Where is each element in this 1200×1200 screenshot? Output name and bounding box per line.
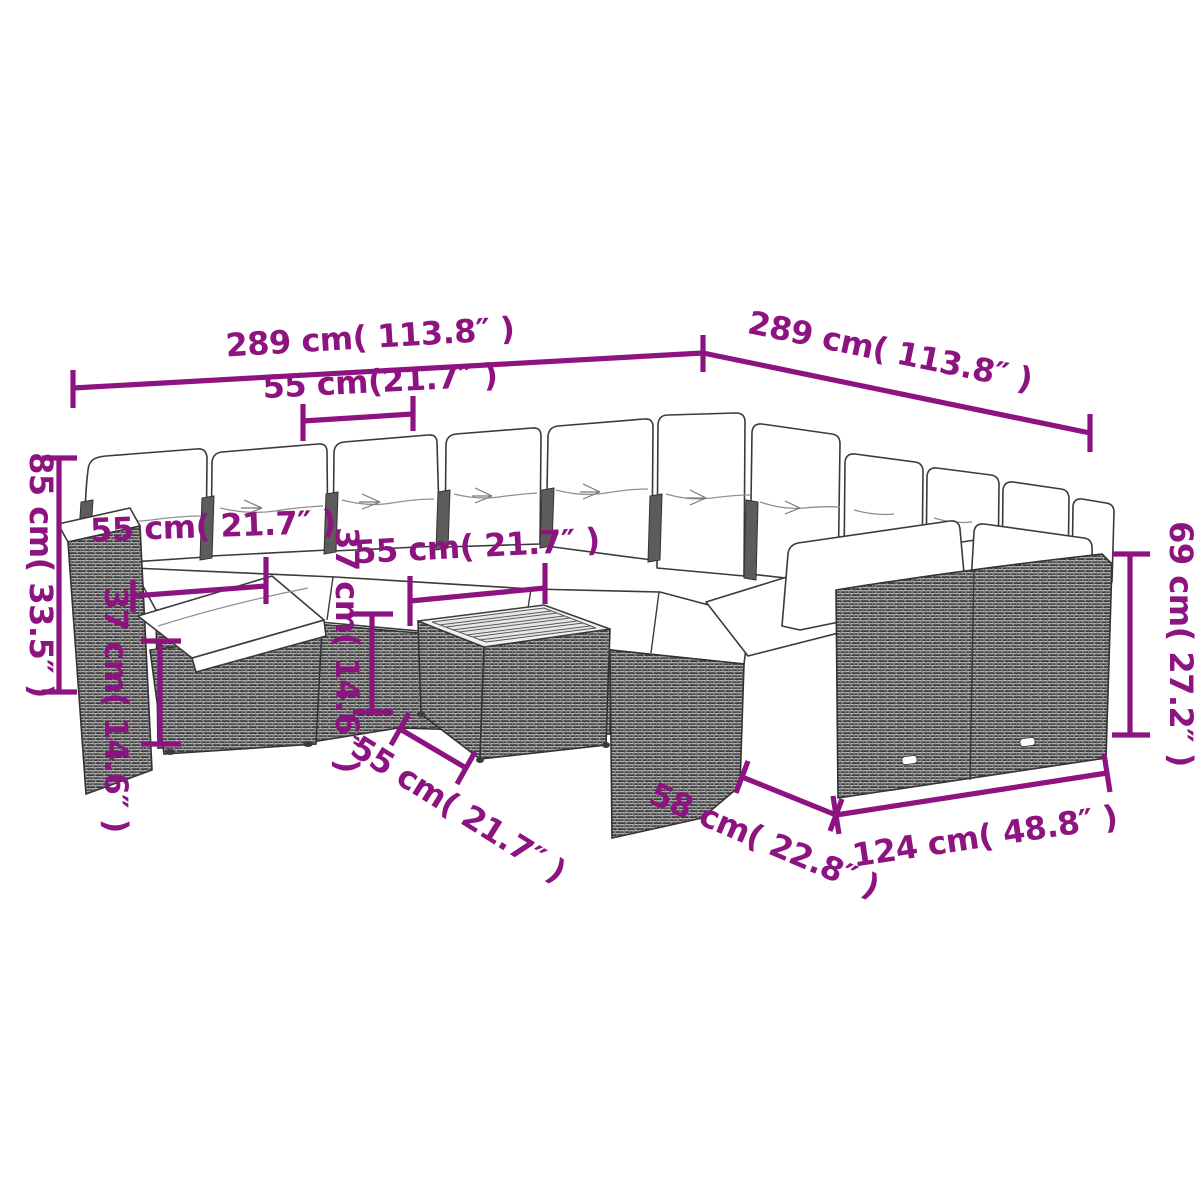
dimension-back-height-left: 85 cm( 33.5″ )	[22, 452, 77, 698]
dimension-label: 69 cm( 27.2″ )	[1162, 521, 1200, 767]
sofa-illustration	[58, 413, 1114, 838]
product-dimension-diagram: 289 cm( 113.8″ ) 289 cm( 113.8″ ) 55 cm(…	[0, 0, 1200, 1200]
diagram-canvas: 289 cm( 113.8″ ) 289 cm( 113.8″ ) 55 cm(…	[0, 0, 1200, 1200]
coffee-table	[417, 605, 610, 763]
dimension-seat-width-top: 55 cm(21.7″ )	[262, 356, 499, 441]
dimension-label: 289 cm( 113.8″ )	[745, 303, 1036, 398]
dimension-side-height-right: 69 cm( 27.2″ )	[1112, 521, 1200, 767]
dimension-label: 85 cm( 33.5″ )	[22, 452, 60, 698]
dimension-label: 37 cm( 14.6″ )	[97, 587, 135, 833]
dimension-label: 55 cm(21.7″ )	[262, 356, 499, 406]
